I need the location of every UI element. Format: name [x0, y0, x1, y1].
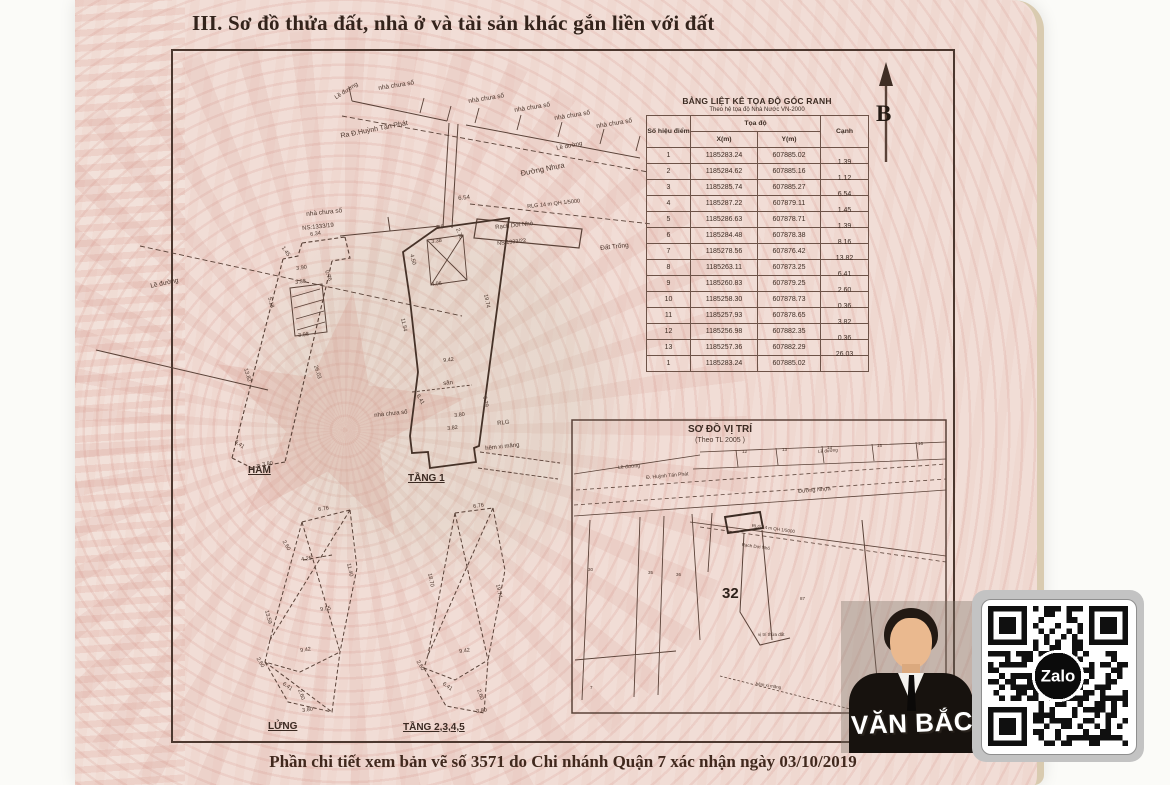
coordinate-cell: 607876.42: [758, 244, 821, 260]
plan-annotation: 6.29: [481, 396, 489, 408]
plan-annotation: Đất Trống: [600, 243, 629, 252]
coordinate-cell: 607878.73: [758, 292, 821, 308]
edge-cell: 2.60: [821, 276, 869, 292]
coordinate-row: 111185257.93607878.653.82: [647, 308, 869, 324]
plan-annotation: 6.76: [473, 504, 484, 511]
plan-annotation: Đường Nhựa: [520, 161, 565, 177]
coordinate-table-body: 11185283.24607885.021.3921185284.6260788…: [647, 148, 869, 372]
plan-annotation: Lề đường: [618, 464, 640, 471]
plan-annotation: 2.60: [280, 540, 290, 552]
edge-cell: 0.36: [821, 292, 869, 308]
coordinate-cell: 13: [647, 340, 691, 356]
coordinate-row: 21185284.62607885.161.12: [647, 164, 869, 180]
coordinate-cell: 3: [647, 180, 691, 196]
plan-annotation: nhà chưa số: [374, 410, 408, 419]
plan-annotation: 3.38: [295, 280, 306, 287]
col-x-header: X(m): [691, 132, 758, 148]
coordinate-row: 81185263.11607873.256.41: [647, 260, 869, 276]
coordinate-cell: 11: [647, 308, 691, 324]
coordinate-cell: 1185286.63: [691, 212, 758, 228]
plan-annotation: hẻm xi măng: [485, 442, 520, 452]
plan-annotation: 26.03: [312, 365, 321, 380]
plan-annotation: 4.50: [408, 254, 416, 266]
plan-annotation: nhà chưa số: [554, 110, 591, 122]
coordinate-cell: 2: [647, 164, 691, 180]
plan-annotation: 14: [827, 446, 832, 451]
coordinate-cell: 607885.02: [758, 148, 821, 164]
edge-cell: [821, 356, 869, 372]
plan-annotation: 6.34: [310, 232, 321, 239]
edge-cell: 6.54: [821, 180, 869, 196]
coordinate-cell: 1185284.48: [691, 228, 758, 244]
plan-annotation: nhà chưa số: [468, 93, 505, 105]
coordinate-cell: 1185256.98: [691, 324, 758, 340]
plan-annotation: 11.54: [399, 318, 407, 332]
parcel-number: 32: [722, 585, 739, 602]
plan-annotation: Đ. Huỳnh Tấn Phát: [646, 472, 689, 481]
plan-annotation: 15: [877, 444, 882, 449]
coordinate-cell: 607885.16: [758, 164, 821, 180]
qr-code: Zalo: [988, 606, 1128, 746]
coordinate-cell: 607878.65: [758, 308, 821, 324]
plan-annotation: 9.55: [320, 607, 331, 614]
location-map-subtitle: (Theo TL 2005 ): [600, 437, 840, 444]
edge-cell: 3.82: [821, 308, 869, 324]
edge-cell: 0.36: [821, 324, 869, 340]
plan-annotation: 3.80: [302, 708, 313, 715]
plan-annotation: 4.25: [301, 557, 312, 564]
coordinate-table: BẢNG LIỆT KÊ TỌA ĐỘ GÓC RANH Theo hệ tọa…: [646, 96, 868, 372]
north-label: B: [876, 101, 891, 127]
coordinate-cell: 10: [647, 292, 691, 308]
coordinate-cell: 1: [647, 356, 691, 372]
zalo-logo-text: Zalo: [1041, 667, 1076, 686]
plan-annotation: 9.42: [300, 648, 311, 655]
coordinate-cell: 7: [647, 244, 691, 260]
coordinate-row: 61185284.48607878.388.16: [647, 228, 869, 244]
coordinate-row: 11185283.24607885.02: [647, 356, 869, 372]
plan-annotation: 9.42: [459, 649, 470, 656]
plan-annotation: 19.74: [482, 294, 490, 309]
coordinate-row: 11185283.24607885.021.39: [647, 148, 869, 164]
coordinate-cell: 607878.71: [758, 212, 821, 228]
plan-annotation: 6.54: [458, 195, 470, 202]
coordinate-row: 121185256.98607882.350.36: [647, 324, 869, 340]
plan-annotation: 7: [590, 686, 593, 691]
coordinate-row: 131185257.36607882.2926.03: [647, 340, 869, 356]
plan-annotation: 3.80: [476, 709, 487, 716]
plan-annotation: 1.45: [279, 246, 290, 258]
coordinate-row: 101185258.30607878.730.36: [647, 292, 869, 308]
coordinate-row: 41185287.22607879.111.45: [647, 196, 869, 212]
edge-cell: 1.39: [821, 212, 869, 228]
plan-annotation: 3.98: [298, 333, 309, 340]
coordinate-cell: 1185278.56: [691, 244, 758, 260]
plan-annotation: 4.06: [431, 282, 442, 289]
col-edge-header: Cạnh: [821, 116, 869, 148]
plan-annotation: NS 1333/22: [497, 239, 526, 248]
coordinate-cell: 607878.38: [758, 228, 821, 244]
plan-annotation: Lề đường: [150, 278, 179, 290]
plan-annotation: nhà chưa số: [306, 208, 343, 218]
coordinate-cell: 6: [647, 228, 691, 244]
coordinate-cell: 1185287.22: [691, 196, 758, 212]
coordinate-table-subtitle: Theo hệ tọa độ Nhà Nước VN-2000: [646, 107, 868, 113]
plan-annotation: 12: [742, 450, 747, 455]
plan-annotation: 16: [918, 442, 923, 447]
plan-annotation: 18.70: [426, 573, 434, 588]
plan-annotation: 2.60: [254, 657, 264, 669]
plan-annotation: 13.59: [263, 610, 272, 625]
plan-annotation: 2.60: [296, 689, 305, 701]
plan-annotation: Lề đường: [556, 141, 583, 152]
plan-annotation: 11.40: [345, 563, 353, 577]
screenshot-root: III. Sơ đồ thửa đất, nhà ở và tài sản kh…: [0, 0, 1170, 785]
coordinate-cell: 1185257.36: [691, 340, 758, 356]
plan-annotation: 2.60: [475, 689, 484, 701]
edge-cell: 1.39: [821, 148, 869, 164]
plan-annotation: 3.80: [454, 413, 465, 420]
plan-annotation: Đường Nhựa: [798, 487, 831, 495]
col-y-header: Y(m): [758, 132, 821, 148]
plan-annotation: 6.41: [414, 394, 424, 406]
plan-annotation: 5.18: [266, 297, 274, 309]
label-mezzanine: LỬNG: [268, 721, 297, 732]
plan-annotation: 6.41: [233, 440, 245, 451]
plan-annotation: 0.76: [323, 270, 332, 282]
plan-annotation: 13.82: [242, 368, 251, 383]
coordinate-row: 71185278.56607876.4213.82: [647, 244, 869, 260]
plan-annotation: nhà chưa số: [596, 118, 633, 130]
plan-annotation: nhà chưa số: [378, 80, 415, 92]
plan-annotation: Lề đường: [334, 82, 359, 101]
footer-note: Phần chi tiết xem bản vẽ số 3571 do Chi …: [172, 752, 954, 772]
plan-annotation: 87: [800, 597, 805, 602]
col-point-header: Số hiệu điểm: [647, 116, 691, 148]
coordinate-row: 91185260.83607879.252.60: [647, 276, 869, 292]
plan-annotation: Rạch Dơi Nhỏ: [741, 543, 770, 551]
coordinate-cell: 607879.11: [758, 196, 821, 212]
coordinate-row: 31185285.74607885.276.54: [647, 180, 869, 196]
plan-annotation: Rạch Dơi Nhỏ: [495, 221, 533, 231]
plan-annotation: 3.82: [447, 426, 458, 433]
plan-annotation: 3.9: [436, 225, 444, 231]
plan-annotation: 19.74: [494, 584, 502, 599]
plan-annotation: RLG 14 m QH 1/5000: [751, 524, 795, 535]
coordinate-cell: 607882.29: [758, 340, 821, 356]
edge-cell: 13.82: [821, 244, 869, 260]
label-upper-floors: TẦNG 2,3,4,5: [403, 722, 465, 733]
agent-face: [890, 618, 932, 669]
agent-name: VĂN BẮC: [836, 705, 989, 741]
label-basement: HẦM: [248, 465, 271, 476]
plan-annotation: 9.42: [443, 358, 454, 365]
plan-annotation: sân: [443, 380, 453, 387]
plan-annotation: 36: [676, 573, 681, 578]
coordinate-cell: 607879.25: [758, 276, 821, 292]
coordinate-row: 51185286.63607878.711.39: [647, 212, 869, 228]
edge-cell: 6.41: [821, 260, 869, 276]
col-coords-header: Tọa độ: [691, 116, 821, 132]
plan-annotation: 2.60: [414, 660, 424, 672]
coordinate-cell: 607882.35: [758, 324, 821, 340]
plan-annotation: vị trí thửa đất: [758, 633, 785, 638]
plan-annotation: 30: [588, 568, 593, 573]
coordinate-table-grid: Số hiệu điểm Tọa độ Cạnh X(m) Y(m) 11185…: [646, 115, 869, 372]
plan-annotation: 2.76: [454, 228, 463, 240]
coordinate-cell: 1185263.11: [691, 260, 758, 276]
coordinate-cell: 1185257.93: [691, 308, 758, 324]
coordinate-cell: 8: [647, 260, 691, 276]
plan-annotation: Ra Đ.Huỳnh Tấn Phát: [340, 120, 408, 140]
plan-annotation: 35: [648, 571, 653, 576]
coordinate-cell: 12: [647, 324, 691, 340]
plan-annotation: 3.38: [431, 239, 442, 246]
coordinate-cell: 5: [647, 212, 691, 228]
edge-cell: 8.16: [821, 228, 869, 244]
plan-annotation: 6.41: [281, 682, 293, 693]
coordinate-cell: 1185283.24: [691, 356, 758, 372]
coordinate-cell: 607873.25: [758, 260, 821, 276]
location-map-title: SƠ ĐỒ VỊ TRÍ: [600, 424, 840, 435]
coordinate-cell: 607885.27: [758, 180, 821, 196]
coordinate-cell: 9: [647, 276, 691, 292]
plan-annotation: 6.76: [318, 507, 329, 514]
plan-annotation: RLG 14 m QH 1/5000: [527, 199, 580, 210]
plan-annotation: RLG: [497, 420, 510, 427]
plan-annotation: 3.90: [296, 266, 307, 273]
coordinate-cell: 1185283.24: [691, 148, 758, 164]
plan-annotation: hẻm xi măng: [755, 682, 781, 690]
coordinate-cell: 1: [647, 148, 691, 164]
edge-cell: 26.03: [821, 340, 869, 356]
coordinate-cell: 1185260.83: [691, 276, 758, 292]
coordinate-cell: 1185284.62: [691, 164, 758, 180]
edge-cell: 1.45: [821, 196, 869, 212]
label-floor1: TẦNG 1: [408, 473, 445, 484]
coordinate-cell: 1185258.30: [691, 292, 758, 308]
edge-cell: 1.12: [821, 164, 869, 180]
coordinate-cell: 1185285.74: [691, 180, 758, 196]
coordinate-table-title: BẢNG LIỆT KÊ TỌA ĐỘ GÓC RANH: [646, 96, 868, 106]
plan-annotation: 13: [782, 448, 787, 453]
plan-annotation: 6.41: [441, 682, 453, 693]
plan-annotation: nhà chưa số: [514, 102, 551, 114]
coordinate-cell: 607885.02: [758, 356, 821, 372]
coordinate-cell: 4: [647, 196, 691, 212]
